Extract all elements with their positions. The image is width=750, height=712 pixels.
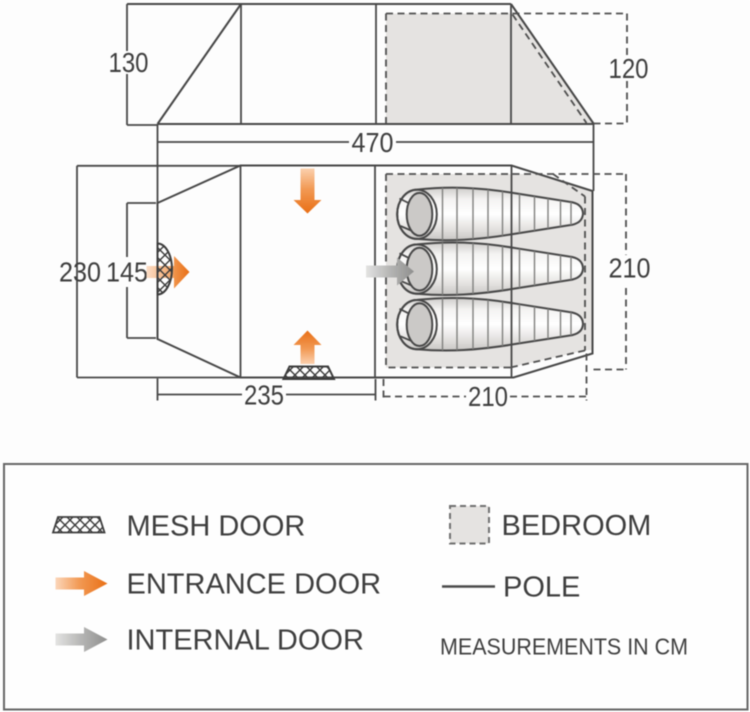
svg-text:130: 130 (109, 47, 149, 78)
svg-text:235: 235 (244, 380, 284, 411)
svg-text:POLE: POLE (503, 572, 580, 604)
svg-text:BEDROOM: BEDROOM (502, 510, 652, 542)
svg-text:MESH DOOR: MESH DOOR (127, 511, 306, 543)
svg-text:145: 145 (106, 257, 148, 288)
svg-text:ENTRANCE DOOR: ENTRANCE DOOR (127, 569, 382, 601)
svg-text:470: 470 (352, 127, 394, 158)
svg-text:210: 210 (468, 381, 508, 412)
svg-text:120: 120 (609, 53, 649, 84)
svg-text:210: 210 (609, 253, 651, 284)
svg-text:INTERNAL DOOR: INTERNAL DOOR (127, 625, 364, 657)
svg-text:230: 230 (59, 257, 101, 288)
svg-text:MEASUREMENTS IN CM: MEASUREMENTS IN CM (440, 634, 688, 660)
